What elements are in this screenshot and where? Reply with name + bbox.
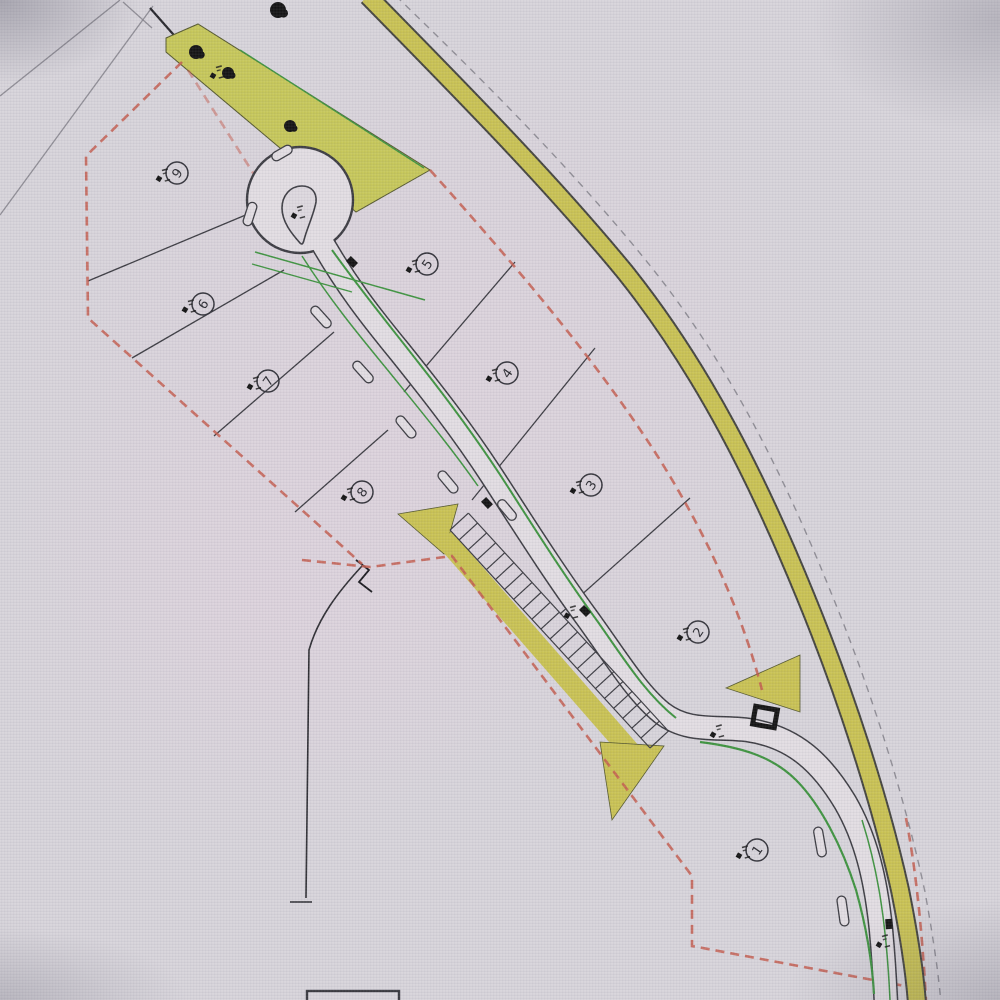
tree-blob [279, 9, 288, 18]
tree-blob [291, 125, 298, 132]
tree-blob [229, 72, 236, 79]
tree-blob [197, 51, 205, 59]
site-plan-photo: 956784321 [0, 0, 1000, 1000]
road-gully-square [885, 919, 893, 929]
site-plan-drawing: 956784321 [0, 0, 1000, 1000]
road-gully [885, 919, 893, 929]
